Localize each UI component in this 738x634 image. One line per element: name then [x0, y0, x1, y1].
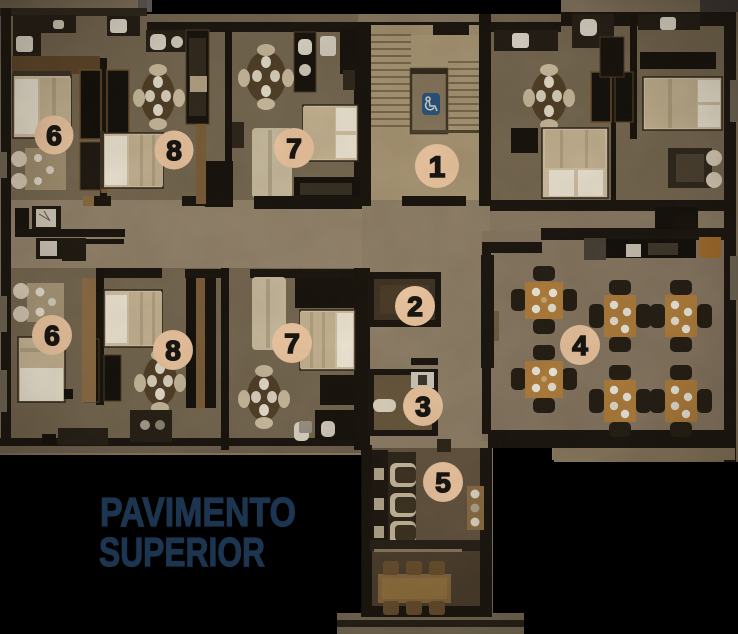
svg-text:SUPERIOR: SUPERIOR	[99, 529, 265, 575]
